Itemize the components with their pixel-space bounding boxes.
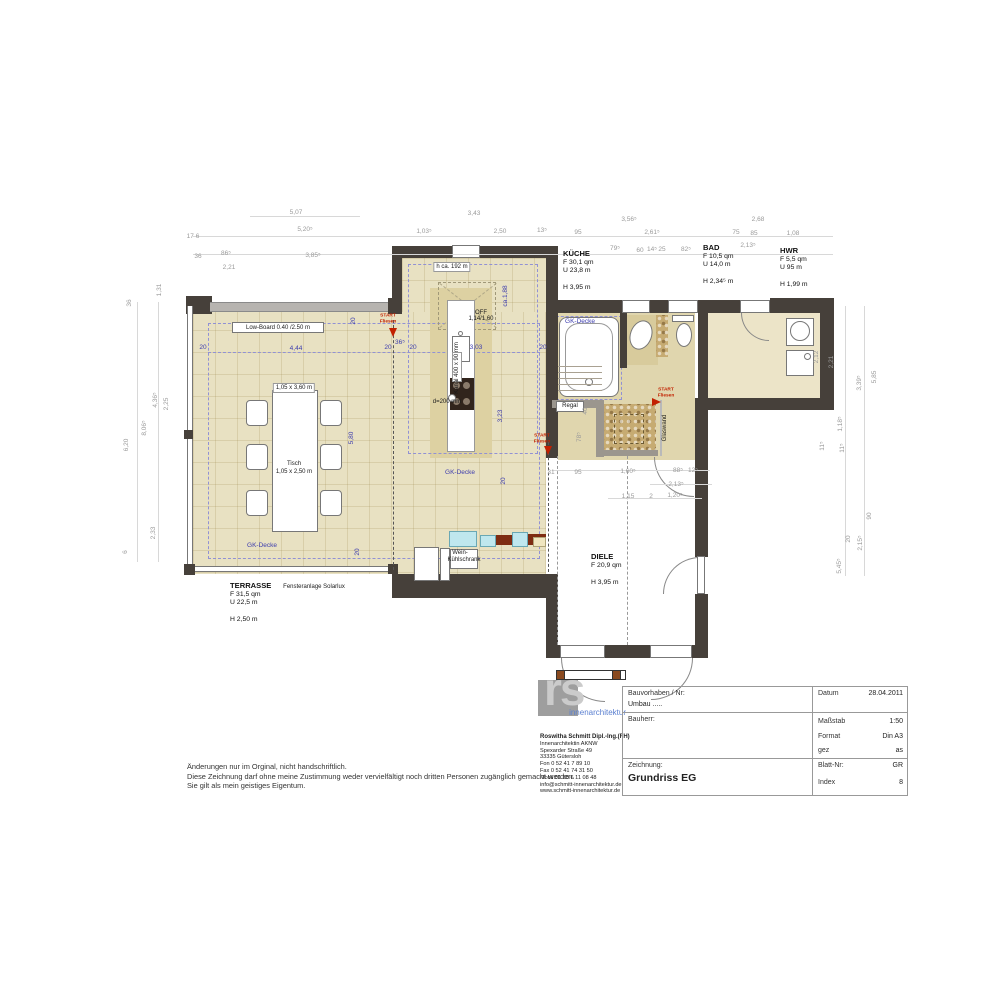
room-name: DIELE bbox=[591, 553, 622, 562]
room-label-layer: KÜCHEF 30,1 qmU 23,8 mH 3,95 mBADF 10,5 … bbox=[0, 0, 999, 999]
room-label-hwr: HWRF 5,5 qmU 95 mH 1,99 m bbox=[780, 247, 808, 290]
room-stat: U 23,8 m bbox=[563, 267, 594, 276]
text-line: 33335 Gütersloh bbox=[540, 754, 630, 761]
room-stat: F 10,5 qm bbox=[703, 253, 734, 262]
room-stat: H 2,50 m bbox=[230, 616, 271, 625]
logo-tagline: innenarchitektur bbox=[548, 708, 626, 717]
room-stat: H 2,34⁵ m bbox=[703, 278, 734, 287]
room-stat: U 95 m bbox=[780, 264, 808, 273]
room-name: KÜCHE bbox=[563, 250, 594, 259]
drawing-value: Grundriss EG bbox=[628, 772, 696, 784]
text-line: Roswitha Schmitt Dipl.-Ing.(FH) bbox=[540, 734, 630, 741]
room-stat: U 22,5 m bbox=[230, 599, 271, 608]
client-label: Bauherr: bbox=[628, 716, 655, 723]
project-value: Umbau ..... bbox=[628, 701, 662, 708]
project-label: Bauvorhaben / Nr: bbox=[628, 690, 685, 697]
floor-plan: 5,0717 65,20⁵3686⁵2,213,85⁵1,03⁵3,432,50… bbox=[0, 0, 999, 999]
room-stat: F 31,5 qm bbox=[230, 591, 271, 600]
text-line: Mobil 01 60 6 11 08 48 bbox=[540, 775, 630, 782]
text-line: Spexarder Straße 49 bbox=[540, 748, 630, 755]
room-stat: F 20,9 qm bbox=[591, 562, 622, 571]
text-line: Fax 0 52 41 74 31 50 bbox=[540, 768, 630, 775]
room-stat bbox=[703, 270, 734, 279]
text-line: Änderungen nur im Orginal, nicht handsch… bbox=[187, 762, 574, 772]
room-stat: F 5,5 qm bbox=[780, 256, 808, 265]
room-stat: H 3,95 m bbox=[591, 579, 622, 588]
room-label-bad: BADF 10,5 qmU 14,0 mH 2,34⁵ m bbox=[703, 244, 734, 287]
field-value: Din A3 bbox=[818, 733, 903, 740]
title-block-line bbox=[622, 712, 908, 713]
field-value: as bbox=[818, 747, 903, 754]
room-label-diele: DIELEF 20,9 qmH 3,95 m bbox=[591, 553, 622, 587]
room-name: BAD bbox=[703, 244, 734, 253]
room-name: HWR bbox=[780, 247, 808, 256]
architect-contact: Roswitha Schmitt Dipl.-Ing.(FH)Innenarch… bbox=[540, 734, 630, 795]
text-line: Innenarchitektin AKNW bbox=[540, 741, 630, 748]
room-label-kche: KÜCHEF 30,1 qmU 23,8 mH 3,95 m bbox=[563, 250, 594, 293]
title-block-line bbox=[622, 758, 908, 759]
text-line: Diese Zeichnung darf ohne meine Zustimmu… bbox=[187, 772, 574, 782]
room-stat bbox=[230, 608, 271, 617]
room-stat bbox=[780, 273, 808, 282]
copyright-notes: Änderungen nur im Orginal, nicht handsch… bbox=[187, 762, 574, 791]
text-line: info@schmitt-innenarchitektur.de bbox=[540, 782, 630, 789]
room-stat bbox=[563, 276, 594, 285]
field-value: 8 bbox=[818, 779, 903, 786]
room-label-terrasse: TERRASSEF 31,5 qmU 22,5 mH 2,50 m bbox=[230, 582, 271, 625]
text-line: Sie gilt als mein geistiges Eigentum. bbox=[187, 781, 574, 791]
room-stat: F 30,1 qm bbox=[563, 259, 594, 268]
room-stat bbox=[591, 570, 622, 579]
room-stat: H 1,99 m bbox=[780, 281, 808, 290]
room-stat: U 14,0 m bbox=[703, 261, 734, 270]
floor-plan-sheet: 5,0717 65,20⁵3686⁵2,213,85⁵1,03⁵3,432,50… bbox=[0, 0, 999, 999]
title-block-line bbox=[812, 686, 813, 796]
field-value: 28.04.2011 bbox=[818, 690, 903, 697]
room-name: TERRASSE bbox=[230, 582, 271, 591]
field-value: 1:50 bbox=[818, 718, 903, 725]
text-line: www.schmitt-innenarchitektur.de bbox=[540, 788, 630, 795]
text-line: Fon 0 52 41 7 89 10 bbox=[540, 761, 630, 768]
drawing-label: Zeichnung: bbox=[628, 762, 663, 769]
room-stat: H 3,95 m bbox=[563, 284, 594, 293]
field-value: GR bbox=[818, 762, 903, 769]
